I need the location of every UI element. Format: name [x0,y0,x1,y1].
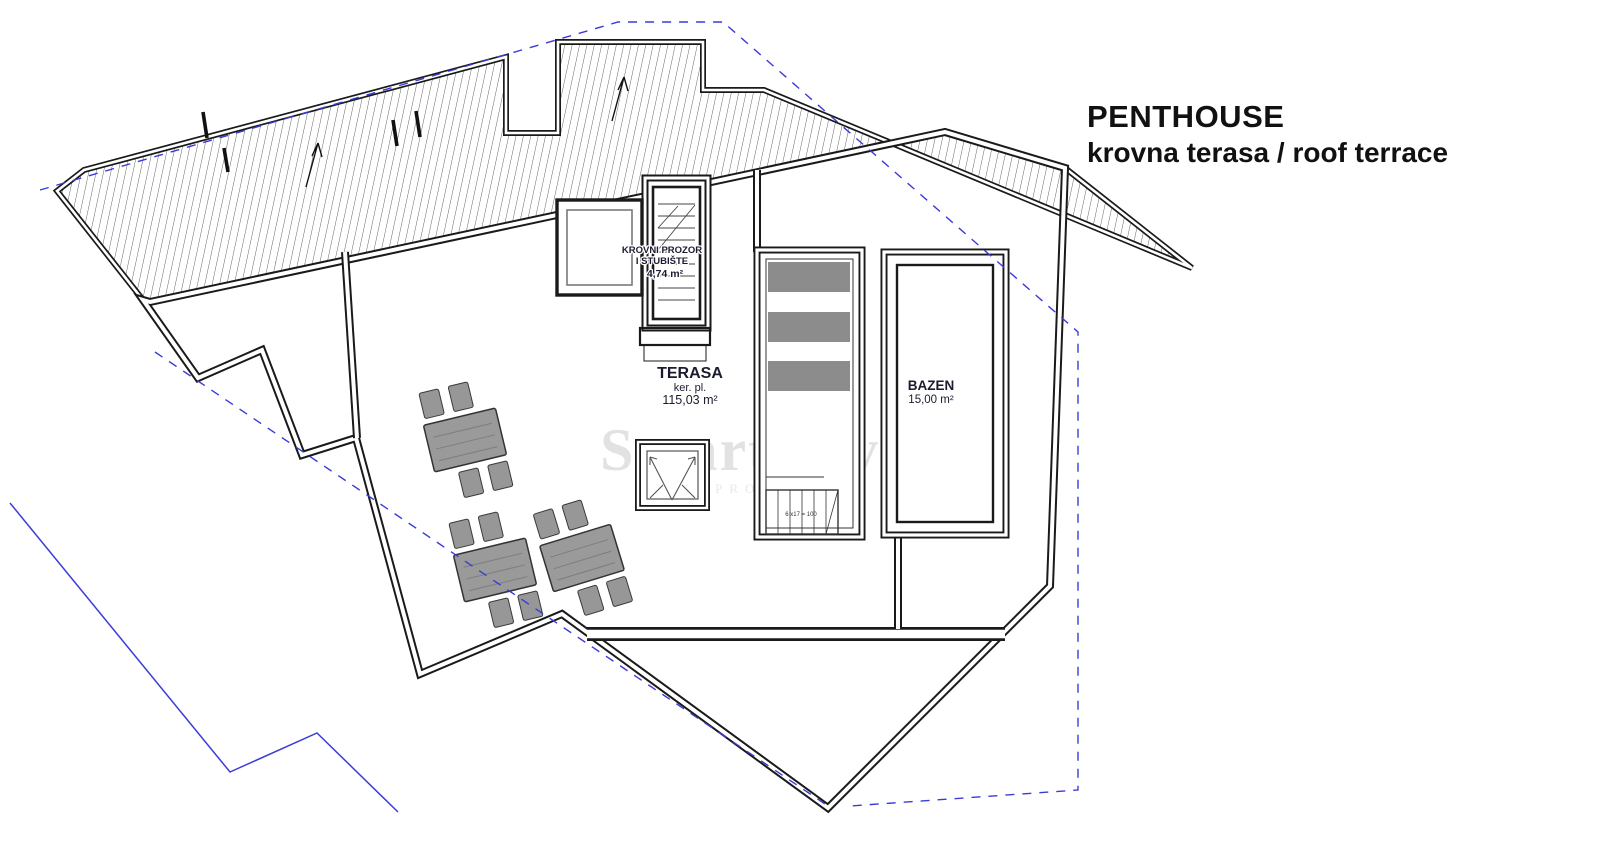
svg-text:BAZEN: BAZEN [908,378,955,393]
svg-text:I STUBIŠTE: I STUBIŠTE [636,255,688,267]
chair [458,468,484,498]
chair [488,461,514,491]
chair [448,382,474,412]
dining-set [416,377,514,503]
table [423,408,506,472]
chair [488,598,514,628]
svg-text:4,74 m²: 4,74 m² [647,268,684,280]
chair [606,576,633,607]
chair [518,591,544,621]
title-subtitle: krovna terasa / roof terrace [1087,136,1448,170]
chair [419,389,445,419]
svg-text:KROVNI PROZOR: KROVNI PROZOR [622,245,702,256]
pool-label: BAZEN 15,00 m² [908,378,955,406]
chair [533,509,560,540]
sun-loungers [768,262,850,391]
chair [449,519,475,549]
lounger-deck: 6 x17 = 100 [757,250,862,537]
terrace-label: TERASA ker. pl. 115,03 m² [657,365,723,407]
svg-text:15,00 m²: 15,00 m² [908,394,954,406]
dining-set [530,494,634,623]
table [453,538,536,602]
terrace-skylight [638,442,707,508]
dining-set [446,507,544,633]
chair [577,585,604,616]
title-penthouse: PENTHOUSE [1087,98,1448,136]
floorplan-page: S Smart Invest ® PROPERTIES [0,0,1600,845]
chair [478,512,504,542]
svg-text:TERASA: TERASA [657,365,723,382]
chair [562,500,589,531]
drawing-title: PENTHOUSE krovna terasa / roof terrace [1087,98,1448,170]
site-boundary-solid [10,503,398,812]
svg-text:115,03 m²: 115,03 m² [662,393,717,407]
deck-stair-dimension: 6 x17 = 100 [785,512,817,518]
